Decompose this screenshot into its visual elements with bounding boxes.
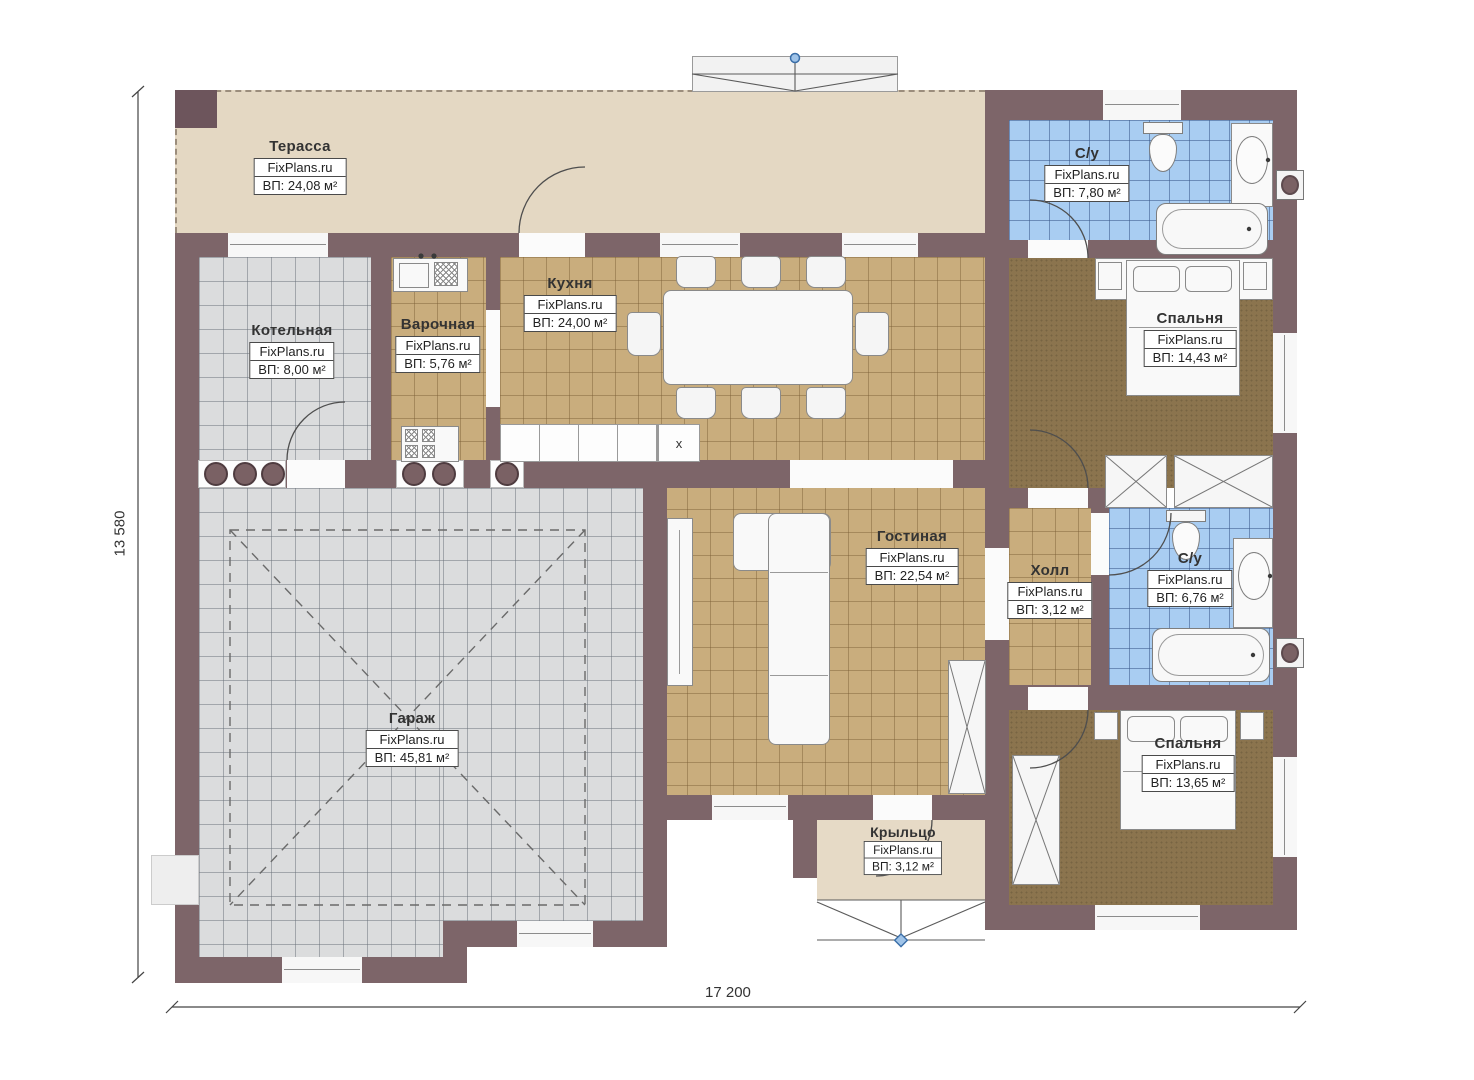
chair	[741, 256, 781, 288]
room-label-hall: Холл FixPlans.ru ВП: 3,12 м²	[1007, 562, 1092, 619]
window	[842, 233, 918, 257]
room-label-porch: Крыльцо FixPlans.ru ВП: 3,12 м²	[860, 824, 945, 878]
sofa	[768, 513, 830, 745]
door-opening-porch	[873, 795, 932, 820]
nightstand	[1098, 262, 1122, 290]
watermark: FixPlans.ru	[1145, 331, 1236, 349]
kitchen-counter	[500, 424, 658, 462]
room-label-kitchen: Кухня FixPlans.ru ВП: 24,00 м²	[524, 275, 617, 332]
room-area: ВП: 5,76 м²	[396, 355, 479, 372]
bathtub-icon	[1152, 628, 1270, 682]
chair	[676, 387, 716, 419]
window	[712, 795, 788, 820]
room-area: ВП: 45,81 м²	[367, 749, 458, 766]
step-lines	[817, 900, 985, 940]
toilet-icon	[1166, 510, 1206, 522]
door-opening-bathroom-top	[1028, 240, 1088, 258]
window	[1103, 90, 1181, 120]
room-label-bedroom-bottom: Спальня FixPlans.ru ВП: 13,65 м²	[1142, 735, 1235, 792]
window	[517, 921, 593, 947]
chair	[627, 312, 661, 356]
window	[1095, 905, 1200, 930]
watermark: FixPlans.ru	[1148, 571, 1231, 589]
chair	[806, 256, 846, 288]
door-opening-boiler-garage	[287, 460, 345, 488]
door-opening-bathroom-bottom	[1091, 513, 1109, 575]
wall	[643, 460, 667, 921]
room-area: ВП: 3,12 м²	[1008, 601, 1091, 618]
watermark: FixPlans.ru	[1045, 166, 1128, 184]
room-name: Котельная	[249, 322, 334, 339]
dining-table	[663, 290, 853, 385]
stove-burner	[405, 429, 418, 442]
chair	[676, 256, 716, 288]
room-name: Терасса	[254, 138, 347, 155]
floor-garage	[443, 488, 643, 921]
column	[432, 462, 456, 486]
window	[228, 233, 328, 257]
room-area: ВП: 13,65 м²	[1143, 774, 1234, 791]
watermark: FixPlans.ru	[1008, 583, 1091, 601]
room-name: Гостиная	[866, 528, 959, 545]
watermark: FixPlans.ru	[867, 549, 958, 567]
wardrobe	[948, 660, 986, 794]
room-name: Спальня	[1142, 735, 1235, 752]
chair	[806, 387, 846, 419]
nightstand	[1243, 262, 1267, 290]
column	[204, 462, 228, 486]
room-label-boiler: Котельная FixPlans.ru ВП: 8,00 м²	[249, 322, 334, 379]
wardrobe	[1012, 755, 1060, 885]
room-area: ВП: 24,00 м²	[525, 314, 616, 331]
room-area: ВП: 3,12 м²	[865, 858, 942, 874]
dimension-width: 17 200	[705, 984, 751, 1001]
room-label-bathroom-top: С/у FixPlans.ru ВП: 7,80 м²	[1044, 145, 1129, 202]
room-name: Холл	[1007, 562, 1092, 579]
pillow	[1133, 266, 1180, 292]
wall	[985, 90, 1009, 930]
watermark: FixPlans.ru	[1143, 756, 1234, 774]
wall	[793, 820, 817, 878]
room-label-terrace: Терасса FixPlans.ru ВП: 24,08 м²	[254, 138, 347, 195]
room-area: ВП: 24,08 м²	[255, 177, 346, 194]
watermark: FixPlans.ru	[525, 296, 616, 314]
chair	[741, 387, 781, 419]
column	[233, 462, 257, 486]
watermark: FixPlans.ru	[250, 343, 333, 361]
watermark: FixPlans.ru	[367, 731, 458, 749]
marker-dot	[895, 934, 908, 947]
opening-hall-living	[985, 548, 1009, 640]
watermark: FixPlans.ru	[865, 842, 942, 859]
room-area: ВП: 6,76 м²	[1148, 589, 1231, 606]
washing-machine-icon	[1276, 638, 1304, 668]
sink-icon	[1238, 552, 1270, 600]
bathtub-icon	[1156, 203, 1268, 255]
room-area: ВП: 14,43 м²	[1145, 349, 1236, 366]
dish-rack	[434, 262, 458, 286]
tv-stand	[667, 518, 693, 686]
column	[261, 462, 285, 486]
wardrobe	[1174, 455, 1273, 508]
room-area: ВП: 22,54 м²	[867, 567, 958, 584]
floor-plan: x	[0, 0, 1474, 1080]
kitchen-counter-cell: x	[658, 424, 700, 462]
room-label-cooking: Варочная FixPlans.ru ВП: 5,76 м²	[395, 316, 480, 373]
room-name: С/у	[1147, 550, 1232, 567]
stove-burner	[422, 445, 435, 458]
window	[1273, 333, 1297, 433]
opening-kitchen-living	[790, 460, 953, 488]
toilet-icon	[1143, 122, 1183, 134]
room-label-bedroom-top: Спальня FixPlans.ru ВП: 14,43 м²	[1144, 310, 1237, 367]
room-area: ВП: 7,80 м²	[1045, 184, 1128, 201]
window	[1273, 757, 1297, 857]
room-label-garage: Гараж FixPlans.ru ВП: 45,81 м²	[366, 710, 459, 767]
pillow	[1185, 266, 1232, 292]
chair	[855, 312, 889, 356]
room-area: ВП: 8,00 м²	[250, 361, 333, 378]
wardrobe	[1105, 455, 1167, 508]
washing-machine-icon	[1276, 170, 1304, 200]
watermark: FixPlans.ru	[396, 337, 479, 355]
sofa-seam	[770, 572, 828, 573]
kitchen-sink	[399, 263, 429, 288]
room-name: Варочная	[395, 316, 480, 333]
column	[402, 462, 426, 486]
window	[282, 957, 362, 983]
room-name: Спальня	[1144, 310, 1237, 327]
room-name: С/у	[1044, 145, 1129, 162]
room-name: Гараж	[366, 710, 459, 727]
sink-icon	[1236, 136, 1268, 184]
door-opening-bedroom-bottom	[1028, 687, 1088, 710]
nightstand	[1094, 712, 1118, 740]
stove-burner	[405, 445, 418, 458]
nightstand	[1240, 712, 1264, 740]
room-name: Крыльцо	[860, 824, 945, 840]
tv	[679, 530, 680, 674]
room-name: Кухня	[524, 275, 617, 292]
entrance-steps-top	[692, 56, 898, 92]
exterior-pad	[151, 855, 199, 905]
wall	[371, 257, 391, 460]
opening-cooking-kitchen	[486, 310, 500, 407]
stove-burner	[422, 429, 435, 442]
sofa-seam	[770, 675, 828, 676]
window	[660, 233, 740, 257]
door-opening-terrace	[519, 233, 585, 257]
room-label-living: Гостиная FixPlans.ru ВП: 22,54 м²	[866, 528, 959, 585]
terrace-corner-pillar	[175, 90, 217, 128]
dimension-height: 13 580	[112, 499, 129, 569]
door-opening-bedroom-top	[1028, 488, 1088, 508]
room-label-bathroom-bottom: С/у FixPlans.ru ВП: 6,76 м²	[1147, 550, 1232, 607]
column	[495, 462, 519, 486]
watermark: FixPlans.ru	[255, 159, 346, 177]
